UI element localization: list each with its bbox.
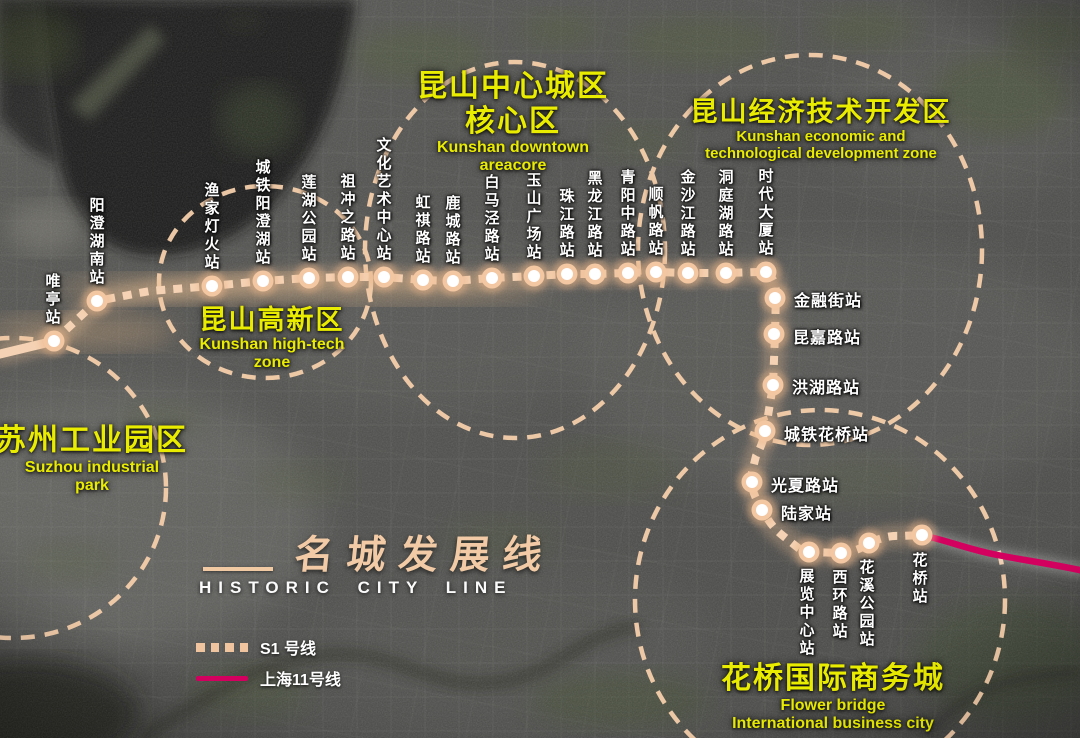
zone-subtitle: areacore bbox=[417, 157, 609, 175]
legend-label: S1 号线 bbox=[260, 635, 316, 659]
line11-solid-swatch bbox=[196, 676, 248, 681]
zone-title: 昆山经济技术开发区 bbox=[691, 97, 952, 128]
legend-item-line11: 上海11号线 bbox=[196, 667, 341, 689]
s1-dashed-swatch bbox=[196, 643, 248, 652]
legend-label: 上海11号线 bbox=[260, 666, 341, 690]
map-title: 名城发展线 bbox=[203, 524, 555, 580]
zone-subtitle: park bbox=[0, 477, 188, 495]
title-chinese: 名城发展线 bbox=[292, 524, 558, 580]
legend-item-s1: S1 号线 bbox=[196, 636, 341, 658]
transit-map-canvas: 唯亭站 阳澄湖南站 渔家灯火站 城铁阳澄湖站 莲湖公园站 祖冲之路站 文化艺术中… bbox=[0, 0, 1080, 738]
zone-label-downtown: 昆山中心城区 核心区 Kunshan downtown areacore bbox=[417, 70, 609, 176]
title-english: HISTORIC CITY LINE bbox=[199, 578, 513, 598]
zone-title: 花桥国际商务城 bbox=[721, 662, 945, 697]
zone-label-suzhou: 苏州工业园区 Suzhou industrial park bbox=[0, 424, 188, 495]
zone-subtitle: Kunshan high-tech bbox=[200, 336, 345, 354]
zone-title: 苏州工业园区 bbox=[0, 424, 188, 459]
zone-subtitle: Suzhou industrial bbox=[0, 459, 188, 477]
zone-labels: 苏州工业园区 Suzhou industrial park 昆山高新区 Kuns… bbox=[0, 0, 1080, 738]
zone-subtitle: technological development zone bbox=[691, 145, 952, 162]
zone-title: 昆山中心城区 bbox=[417, 70, 609, 105]
zone-title: 昆山高新区 bbox=[200, 305, 345, 336]
title-dash-line bbox=[203, 567, 273, 571]
zone-subtitle: zone bbox=[200, 354, 345, 372]
legend: S1 号线 上海11号线 bbox=[196, 636, 341, 698]
zone-label-hightech: 昆山高新区 Kunshan high-tech zone bbox=[200, 305, 345, 373]
zone-subtitle: International business city bbox=[721, 715, 945, 733]
zone-subtitle: Kunshan downtown bbox=[417, 139, 609, 157]
zone-label-economic: 昆山经济技术开发区 Kunshan economic and technolog… bbox=[691, 97, 952, 163]
zone-subtitle: Flower bridge bbox=[721, 697, 945, 715]
zone-label-flowerbridge: 花桥国际商务城 Flower bridge International busi… bbox=[721, 662, 945, 733]
zone-title: 核心区 bbox=[417, 105, 609, 140]
zone-subtitle: Kunshan economic and bbox=[691, 128, 952, 145]
